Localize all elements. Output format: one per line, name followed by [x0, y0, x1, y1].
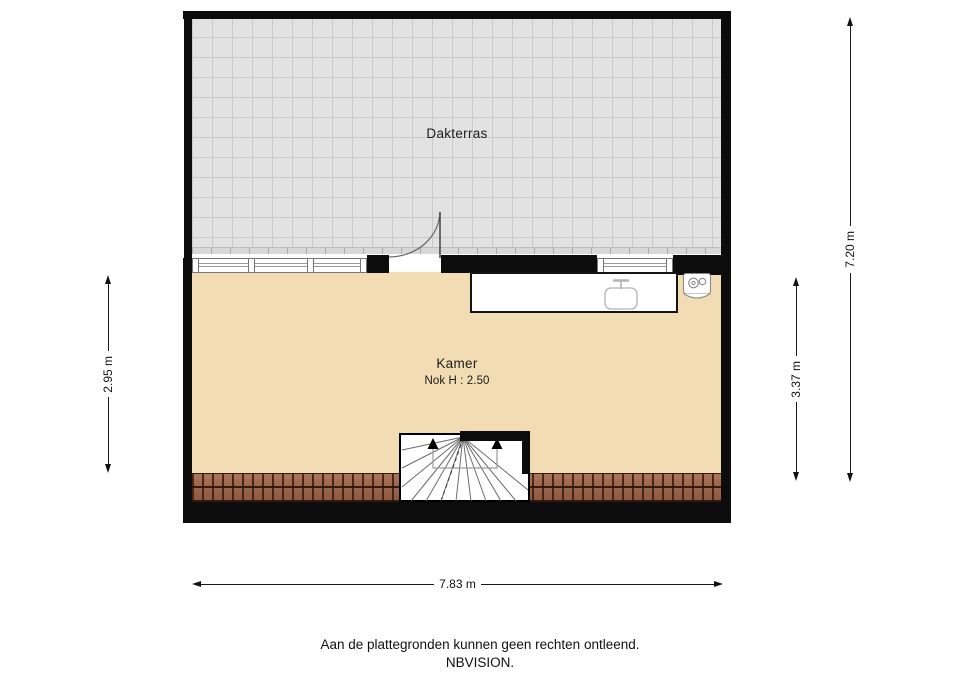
arrow-down-icon	[847, 473, 853, 482]
floorplan-canvas: Dakterras Kamer Nok H : 2.50 2.95 m 7.20…	[0, 0, 960, 679]
arrow-down-icon	[793, 472, 799, 481]
window-mullion	[360, 258, 367, 273]
dakterras-label-text: Dakterras	[426, 126, 487, 141]
wall-right	[721, 11, 731, 523]
wall-bottom	[183, 502, 731, 523]
arrow-up-icon	[793, 277, 799, 286]
dimension-label: 7.20 m	[843, 226, 857, 273]
kitchen-counter	[470, 272, 678, 313]
staircase-icon	[399, 430, 531, 503]
footer: Aan de plattegronden kunnen geen rechten…	[0, 636, 960, 672]
arrow-up-icon	[105, 275, 111, 284]
window-mullion	[248, 258, 255, 273]
arrow-left-icon	[192, 581, 201, 587]
stair-top-wall	[460, 431, 530, 441]
dimension-label: 2.95 m	[101, 351, 115, 398]
wall-segment-left-of-door	[367, 255, 389, 273]
wall-top	[183, 11, 731, 19]
arrow-up-icon	[847, 17, 853, 26]
window-mullion	[192, 258, 199, 273]
window-b	[597, 258, 673, 273]
dimension-label: 7.83 m	[434, 577, 481, 591]
footer-brand: NBVISION.	[0, 654, 960, 672]
window-a	[192, 258, 367, 273]
window-mullion	[666, 258, 673, 273]
kamer-label: Kamer Nok H : 2.50	[192, 356, 722, 387]
window-mullion	[307, 258, 314, 273]
sink-icon	[598, 275, 646, 311]
door-swing-icon	[387, 205, 445, 263]
window-mullion	[597, 258, 604, 273]
arrow-right-icon	[714, 581, 723, 587]
wall-left-terrace	[184, 11, 192, 263]
stair-side-wall	[522, 431, 530, 474]
arrow-down-icon	[105, 464, 111, 473]
dimension-label: 3.37 m	[789, 356, 803, 403]
wall-left-kamer	[183, 258, 192, 523]
dimension-right-total: 7.20 m	[838, 17, 862, 482]
kamer-label-text: Kamer	[192, 356, 722, 371]
dimension-right-kamer: 3.37 m	[784, 277, 808, 481]
boiler-icon	[681, 272, 714, 306]
wall-segment-right-of-door	[441, 255, 597, 273]
dimension-left-kamer: 2.95 m	[96, 275, 120, 473]
footer-disclaimer: Aan de plattegronden kunnen geen rechten…	[0, 636, 960, 654]
dimension-bottom-width: 7.83 m	[192, 577, 723, 591]
ridge-height-label: Nok H : 2.50	[192, 375, 722, 387]
dakterras-label: Dakterras	[192, 126, 722, 141]
